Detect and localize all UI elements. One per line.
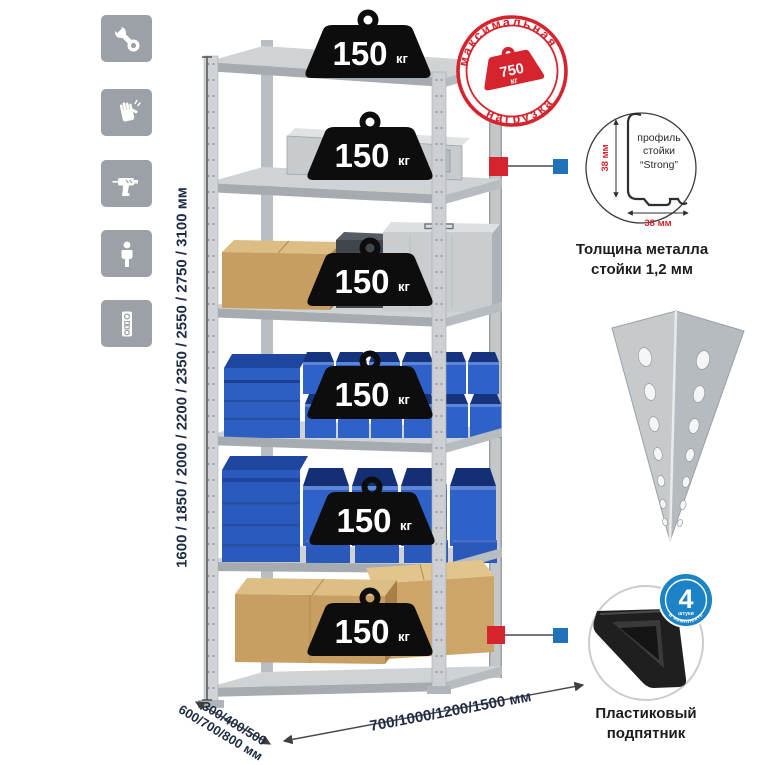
svg-text:кг: кг (398, 629, 411, 644)
svg-text:150: 150 (334, 613, 389, 650)
svg-text:кг: кг (400, 518, 413, 533)
svg-text:кг: кг (398, 392, 411, 407)
gloves-icon (110, 97, 144, 129)
svg-text:стойки: стойки (643, 145, 675, 157)
load-weight: 150 кг (305, 13, 430, 79)
level-icon (110, 308, 144, 340)
included-badge: 4 штуки в комплекте (659, 573, 713, 627)
feature-level (101, 300, 152, 347)
svg-text:кг: кг (396, 51, 409, 66)
feature-person (101, 230, 152, 277)
profile-detail: 38 мм 38 мм профиль стойки “Strong” (586, 113, 696, 229)
red-marker (489, 157, 508, 176)
foot-leader (487, 626, 568, 644)
svg-text:150: 150 (334, 263, 389, 300)
infographic-canvas: 150 кг 150 кг 150 кг 150 кг 150 кг (0, 0, 765, 765)
blue-marker (553, 159, 568, 174)
person-icon (110, 238, 144, 270)
svg-text:4: 4 (678, 584, 693, 614)
svg-text:“Strong”: “Strong” (640, 159, 678, 171)
svg-text:150: 150 (336, 502, 391, 539)
blue-marker (553, 628, 568, 643)
svg-text:38 мм: 38 мм (600, 144, 611, 171)
profile-leader (489, 157, 568, 176)
red-marker (487, 626, 505, 644)
feature-drill (101, 160, 152, 207)
plastic-foot-detail: 4 штуки в комплекте (589, 573, 713, 700)
drill-icon (110, 168, 144, 200)
svg-text:штуки: штуки (678, 611, 694, 617)
feature-wrench (101, 15, 152, 62)
svg-text:кг: кг (398, 153, 411, 168)
svg-text:150: 150 (334, 376, 389, 413)
height-dimension-label: 1600 / 1850 / 2000 / 2200 / 2350 / 2550 … (174, 163, 191, 593)
feature-gloves (101, 89, 152, 136)
svg-text:кг: кг (398, 279, 411, 294)
profile-caption: Толщина металла стойки 1,2 мм (566, 240, 718, 281)
svg-text:150: 150 (334, 137, 389, 174)
max-load-stamp: максимальная нагрузка 750 кг (447, 5, 576, 137)
angle-post-image (612, 311, 744, 541)
wrench-icon (110, 23, 144, 55)
foot-caption: Пластиковый подпятник (576, 704, 716, 745)
svg-text:38 мм: 38 мм (644, 218, 671, 229)
load-weight: 150 кг (307, 115, 432, 181)
svg-text:профиль: профиль (637, 132, 681, 144)
svg-text:150: 150 (332, 35, 387, 72)
